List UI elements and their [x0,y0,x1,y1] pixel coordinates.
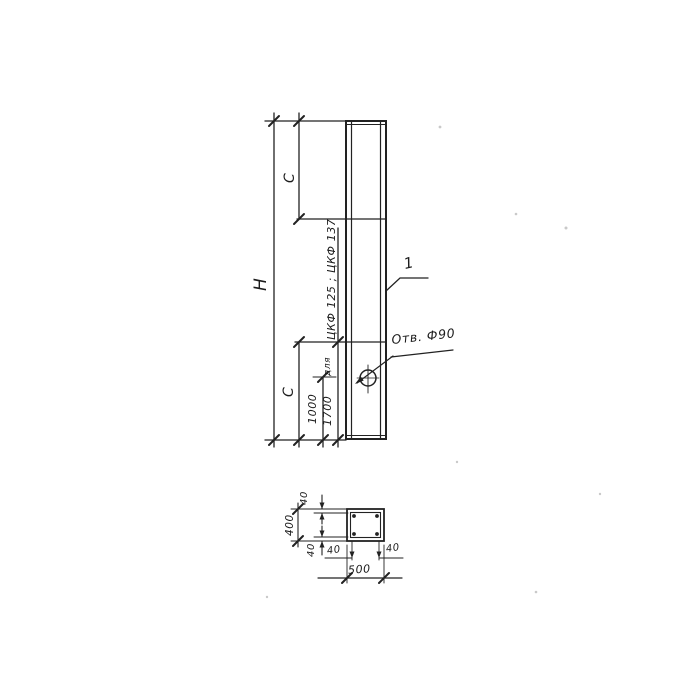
section-outline [347,509,384,541]
height-dimension-label: H [253,278,270,291]
elevation-view [295,121,386,439]
rebar-dot [352,514,356,518]
c-top-dimension-label: C [283,173,297,183]
section-cover-left-label: 40 [326,545,341,557]
section-cover-right-label: 40 [385,543,400,555]
scan-speckles [266,126,601,599]
section-height-label: 400 [285,514,296,536]
rebar-dot [375,514,379,518]
section-cover-top-label: 40 [300,491,310,505]
dim-1000-label: 1000 [307,394,318,424]
section-cover-bottom-label: 40 [307,543,317,557]
hole-label-underline [391,350,453,357]
section-view [347,509,384,541]
section-width-label: 500 [348,563,372,576]
note-applies-for-label: для [324,357,333,376]
c-bottom-dimension-label: C [282,387,296,397]
rebar-dot [352,532,356,536]
part-callout-leader [386,278,428,291]
scanned-technical-drawing: H C C 1000 1700 для ЦКФ 125 ; ЦКФ 137 1 … [0,0,700,700]
column-type-note-label: ЦКФ 125 ; ЦКФ 137 [326,218,337,340]
dim-1700-label: 1700 [322,396,333,426]
leader-line [386,278,428,291]
technical-drawing-canvas [0,0,700,700]
rebar-dot [375,532,379,536]
